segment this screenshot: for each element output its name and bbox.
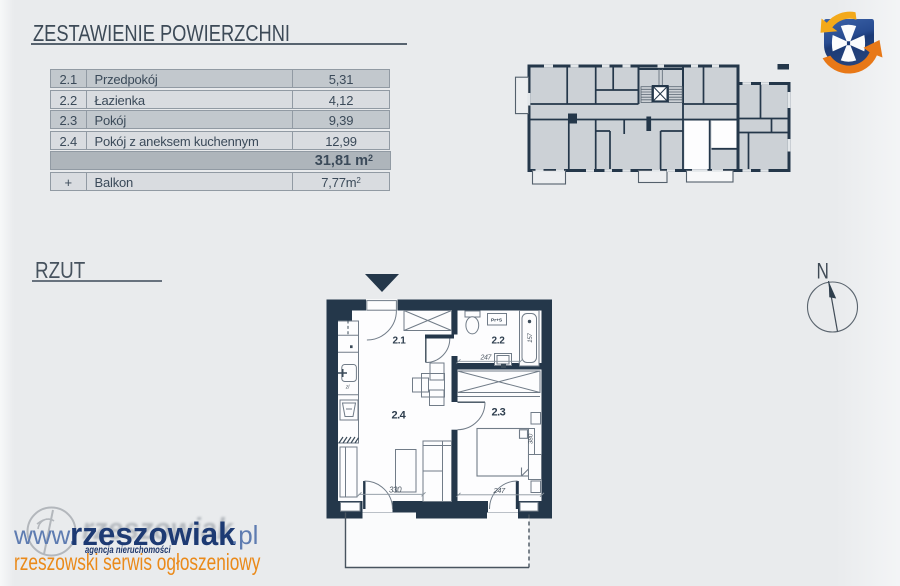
svg-text:Pr+S: Pr+S bbox=[491, 318, 503, 324]
svg-text:2.2: 2.2 bbox=[492, 336, 506, 347]
svg-text:2.3: 2.3 bbox=[492, 407, 506, 419]
svg-text:247: 247 bbox=[493, 486, 507, 495]
svg-text:2.4: 2.4 bbox=[392, 410, 407, 422]
svg-text:380: 380 bbox=[528, 433, 535, 444]
svg-text:2.1: 2.1 bbox=[393, 336, 407, 347]
svg-text:157: 157 bbox=[528, 333, 534, 343]
svg-text:247: 247 bbox=[480, 354, 493, 361]
svg-text:N: N bbox=[816, 260, 828, 285]
svg-text:330: 330 bbox=[389, 486, 402, 495]
